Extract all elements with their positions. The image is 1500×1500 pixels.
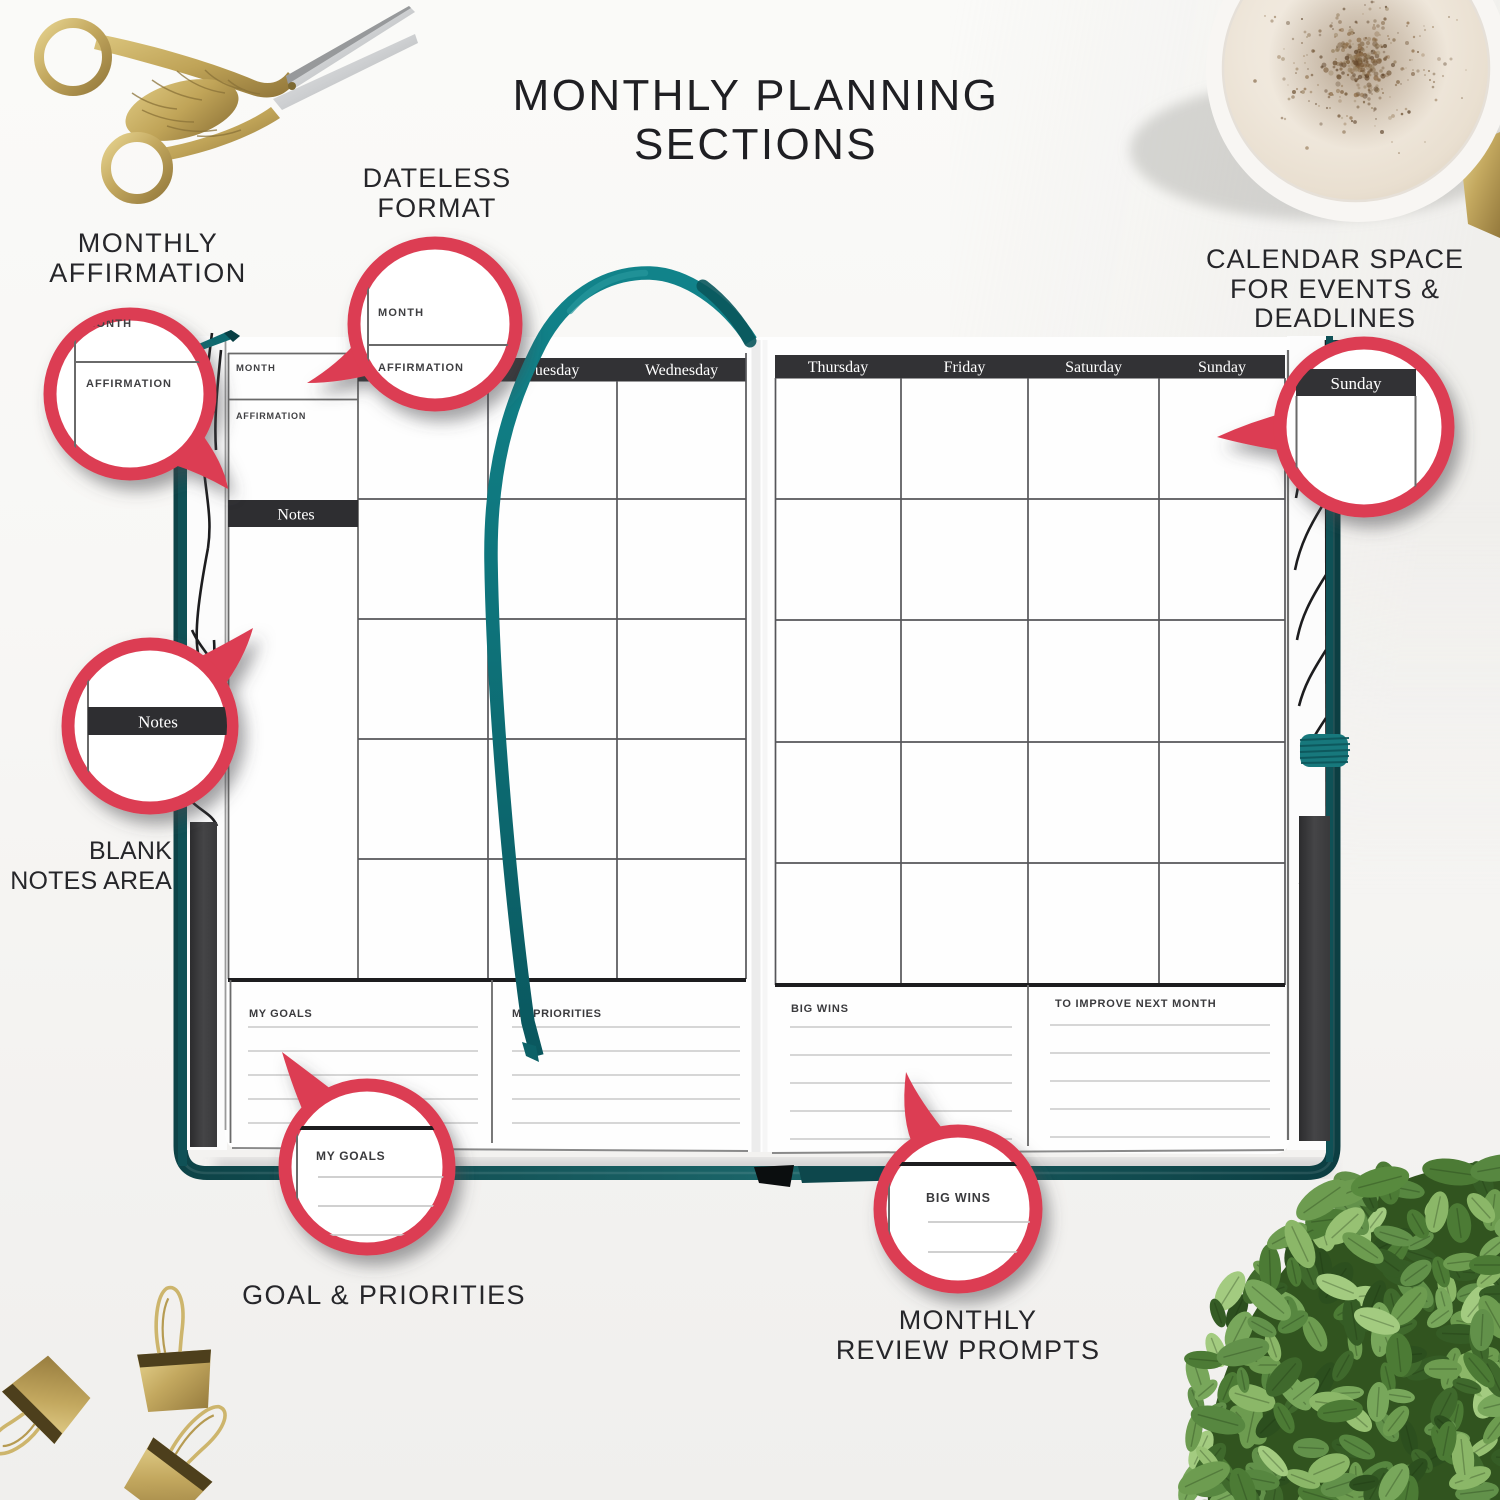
svg-text:MY GOALS: MY GOALS [316,1149,385,1163]
svg-text:MONTH: MONTH [236,363,276,374]
svg-text:Sunday: Sunday [1198,359,1246,376]
svg-text:MY GOALS: MY GOALS [249,1008,312,1020]
svg-text:MONTH: MONTH [378,307,424,319]
svg-text:Wednesday: Wednesday [645,362,718,379]
svg-text:BIG WINS: BIG WINS [791,1003,849,1015]
svg-text:Friday: Friday [944,359,986,376]
svg-text:Thursday: Thursday [808,359,868,376]
svg-text:Saturday: Saturday [1065,359,1122,376]
svg-text:AFFIRMATION: AFFIRMATION [378,362,464,374]
svg-text:AFFIRMATION: AFFIRMATION [86,378,172,390]
svg-text:TO IMPROVE NEXT MONTH: TO IMPROVE NEXT MONTH [1055,998,1216,1010]
svg-text:Notes: Notes [277,507,314,524]
svg-text:Sunday: Sunday [1331,374,1383,393]
svg-text:AFFIRMATION: AFFIRMATION [236,411,306,421]
svg-text:Notes: Notes [138,713,178,732]
svg-text:BIG WINS: BIG WINS [926,1191,991,1205]
